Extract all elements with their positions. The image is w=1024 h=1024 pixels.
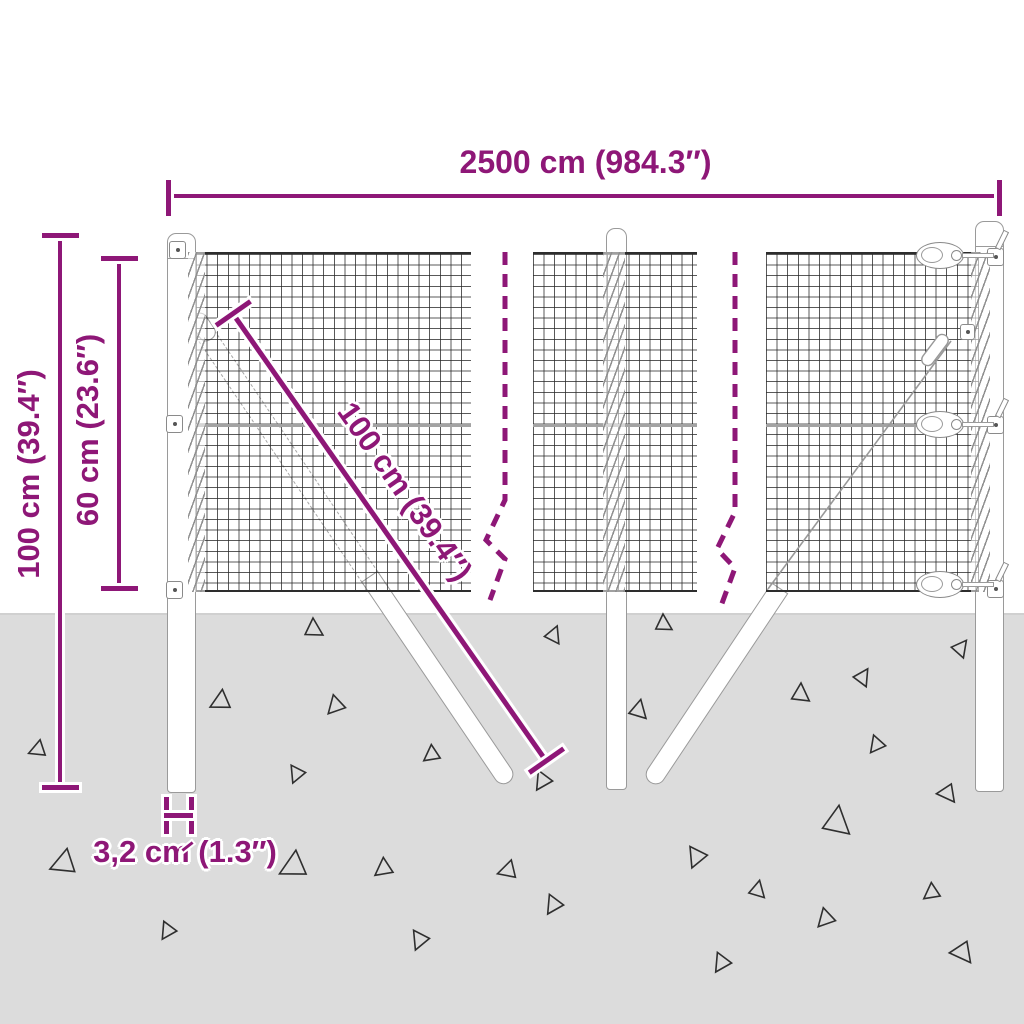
break-line-right xyxy=(717,252,735,606)
dimension-height-label: 100 cm (39.4″) xyxy=(11,369,47,579)
fence-dimension-diagram: 2500 cm (984.3″) 100 cm (39.4″) 60 cm (2… xyxy=(0,0,1024,1024)
dimension-width-label: 2500 cm (984.3″) xyxy=(170,144,1001,181)
dimension-width-tick-right xyxy=(997,180,1002,216)
dimension-height-line xyxy=(58,236,62,786)
tensioner-gear xyxy=(951,579,962,590)
post-bracket xyxy=(166,415,183,433)
post-bracket xyxy=(169,241,186,259)
wire-tensioner-bottom xyxy=(916,571,996,599)
dimension-width-tick-left xyxy=(166,180,171,216)
tensioner-rod xyxy=(962,582,994,587)
tensioner-spool xyxy=(921,416,943,432)
tension-wire-middle xyxy=(196,424,471,427)
dimension-height-tick-bottom xyxy=(42,785,79,790)
dimension-post-width-line xyxy=(164,813,193,818)
tensioner-spool xyxy=(921,247,943,263)
brace-bracket xyxy=(960,324,975,340)
wire-tensioner-middle xyxy=(916,411,996,439)
wire-tensioner-top xyxy=(916,242,996,270)
tensioner-rod xyxy=(962,422,994,427)
spiral-wire-middle xyxy=(603,252,625,592)
tensioner-rod xyxy=(962,253,994,258)
dimension-mesh-height-tick-bottom xyxy=(101,586,138,591)
dimension-mesh-height-label: 60 cm (23.6″) xyxy=(70,334,106,526)
dimension-mesh-height-tick-top xyxy=(101,256,138,261)
dimension-height-tick-top xyxy=(42,233,79,238)
dimension-mesh-height-line xyxy=(117,259,121,587)
spiral-wire-left xyxy=(188,252,205,592)
dimension-width-line xyxy=(170,194,1001,198)
tensioner-gear xyxy=(951,250,962,261)
post-bracket xyxy=(166,581,183,599)
ground xyxy=(0,613,1024,1024)
break-line-left xyxy=(486,252,505,600)
tensioner-gear xyxy=(951,419,962,430)
dimension-post-width-label: 3,2 cm (1.3″) xyxy=(93,834,277,870)
tensioner-spool xyxy=(921,576,943,592)
